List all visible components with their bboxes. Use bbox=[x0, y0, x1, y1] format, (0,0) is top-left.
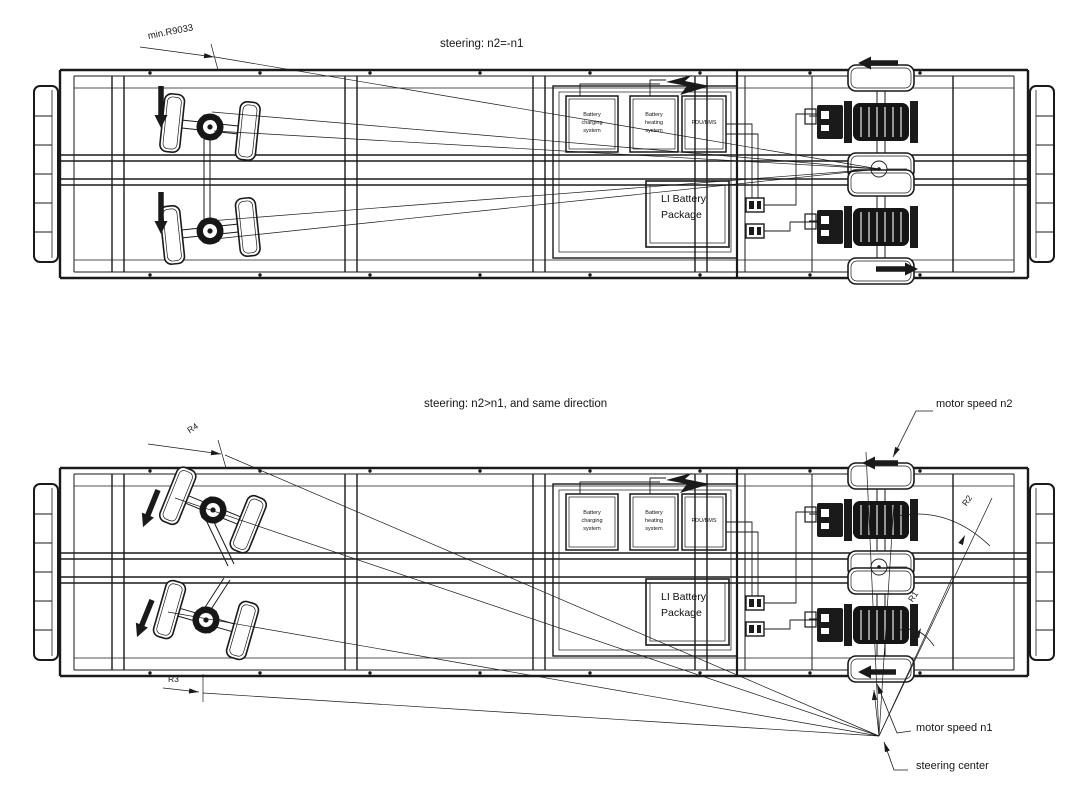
engineering-drawing-page: steering: n2=-n1 min.R9033 Battery charg… bbox=[0, 0, 1080, 795]
pdu-bms-box-label-top: PDU/BMS bbox=[682, 98, 726, 150]
motor-speed-n1-label: motor speed n1 bbox=[916, 722, 992, 734]
bottom-vehicle-drawing bbox=[34, 463, 1054, 682]
li-battery-label-bottom: LI Battery Package bbox=[661, 590, 731, 622]
bottom-drawing-title: steering: n2>n1, and same direction bbox=[424, 398, 607, 410]
battery-charging-box-label-bottom: Battery charging system bbox=[577, 496, 607, 548]
top-vehicle-drawing bbox=[34, 65, 1054, 284]
r3-label: R3 bbox=[168, 674, 179, 684]
motor-speed-n2-label: motor speed n2 bbox=[936, 398, 1012, 410]
battery-charging-box-label-top: Battery charging system bbox=[577, 98, 607, 150]
battery-heating-box-label-bottom: Battery heating system bbox=[639, 496, 669, 548]
pdu-bms-box-label-bottom: PDU/BMS bbox=[682, 496, 726, 548]
steering-center-label: steering center bbox=[916, 760, 989, 772]
li-battery-label-top: LI Battery Package bbox=[661, 192, 731, 224]
top-drawing-title: steering: n2=-n1 bbox=[440, 38, 523, 50]
battery-heating-box-label-top: Battery heating system bbox=[639, 98, 669, 150]
